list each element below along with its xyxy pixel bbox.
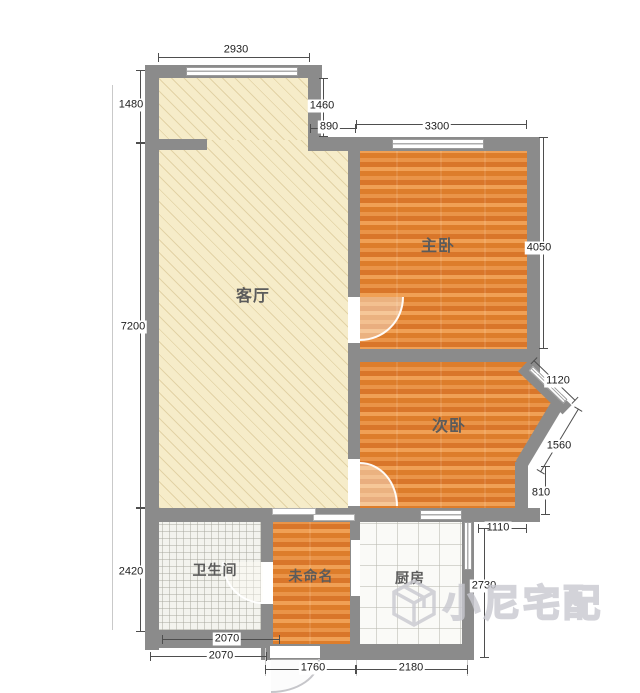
dim-kitchen-bottom-width: 2180 xyxy=(397,662,425,675)
dim-step-width: 890 xyxy=(318,121,340,134)
living-room-floor-upper xyxy=(155,70,315,150)
dim-bathroom-inner-width: 2070 xyxy=(213,633,241,646)
second-bedroom-label: 次卧 xyxy=(432,412,466,436)
entry-door-opening xyxy=(270,646,320,658)
living-entry-sliding-door-panel-2 xyxy=(313,514,355,521)
second-door-opening xyxy=(348,459,360,506)
wall-master-right xyxy=(527,137,540,377)
bathroom-label: 卫生间 xyxy=(193,560,238,580)
dim-bathroom-outer-width: 2070 xyxy=(207,650,235,663)
watermark: 小尼宅配 xyxy=(392,579,603,627)
master-bedroom-window xyxy=(392,139,484,149)
kitchen-door-opening xyxy=(351,540,360,596)
wall-left-stub xyxy=(159,139,207,150)
dim-line-living-top xyxy=(158,57,310,58)
dim-living-left-upper: 1480 xyxy=(117,99,145,112)
dim-bay-upper-width: 1120 xyxy=(544,375,572,388)
wall-left xyxy=(145,65,159,650)
dim-living-top-width: 2930 xyxy=(222,44,250,57)
entry-room-label: 未命名 xyxy=(289,566,334,586)
dim-living-left-height: 7200 xyxy=(119,321,147,334)
watermark-cube-icon xyxy=(392,579,436,627)
dim-step-right-height: 1460 xyxy=(308,100,336,113)
dim-master-right-height: 4050 xyxy=(525,242,553,255)
second-bedroom-window xyxy=(420,510,462,520)
master-door-opening xyxy=(348,297,360,343)
living-room-window xyxy=(186,67,298,76)
dim-bathroom-left-height: 2420 xyxy=(117,566,145,579)
wall-bay-right xyxy=(515,462,528,520)
watermark-text: 小尼宅配 xyxy=(443,585,603,622)
floor-plan: 客厅 主卧 次卧 卫生间 未命名 厨房 2930 1480 7200 2420 … xyxy=(0,0,640,693)
living-room-label: 客厅 xyxy=(236,282,270,306)
master-bedroom-label: 主卧 xyxy=(421,232,455,256)
extension-line-left xyxy=(112,85,113,630)
dim-master-top-width: 3300 xyxy=(423,121,451,134)
kitchen-window xyxy=(464,522,472,570)
dim-bay-lower-width: 1560 xyxy=(545,440,573,453)
living-entry-sliding-door-panel-1 xyxy=(272,508,316,515)
living-room-floor xyxy=(155,140,355,515)
wall-bedroom-divider xyxy=(348,349,527,362)
dim-bay-right-height: 810 xyxy=(530,487,552,500)
dim-entry-bottom-width: 1760 xyxy=(299,662,327,675)
